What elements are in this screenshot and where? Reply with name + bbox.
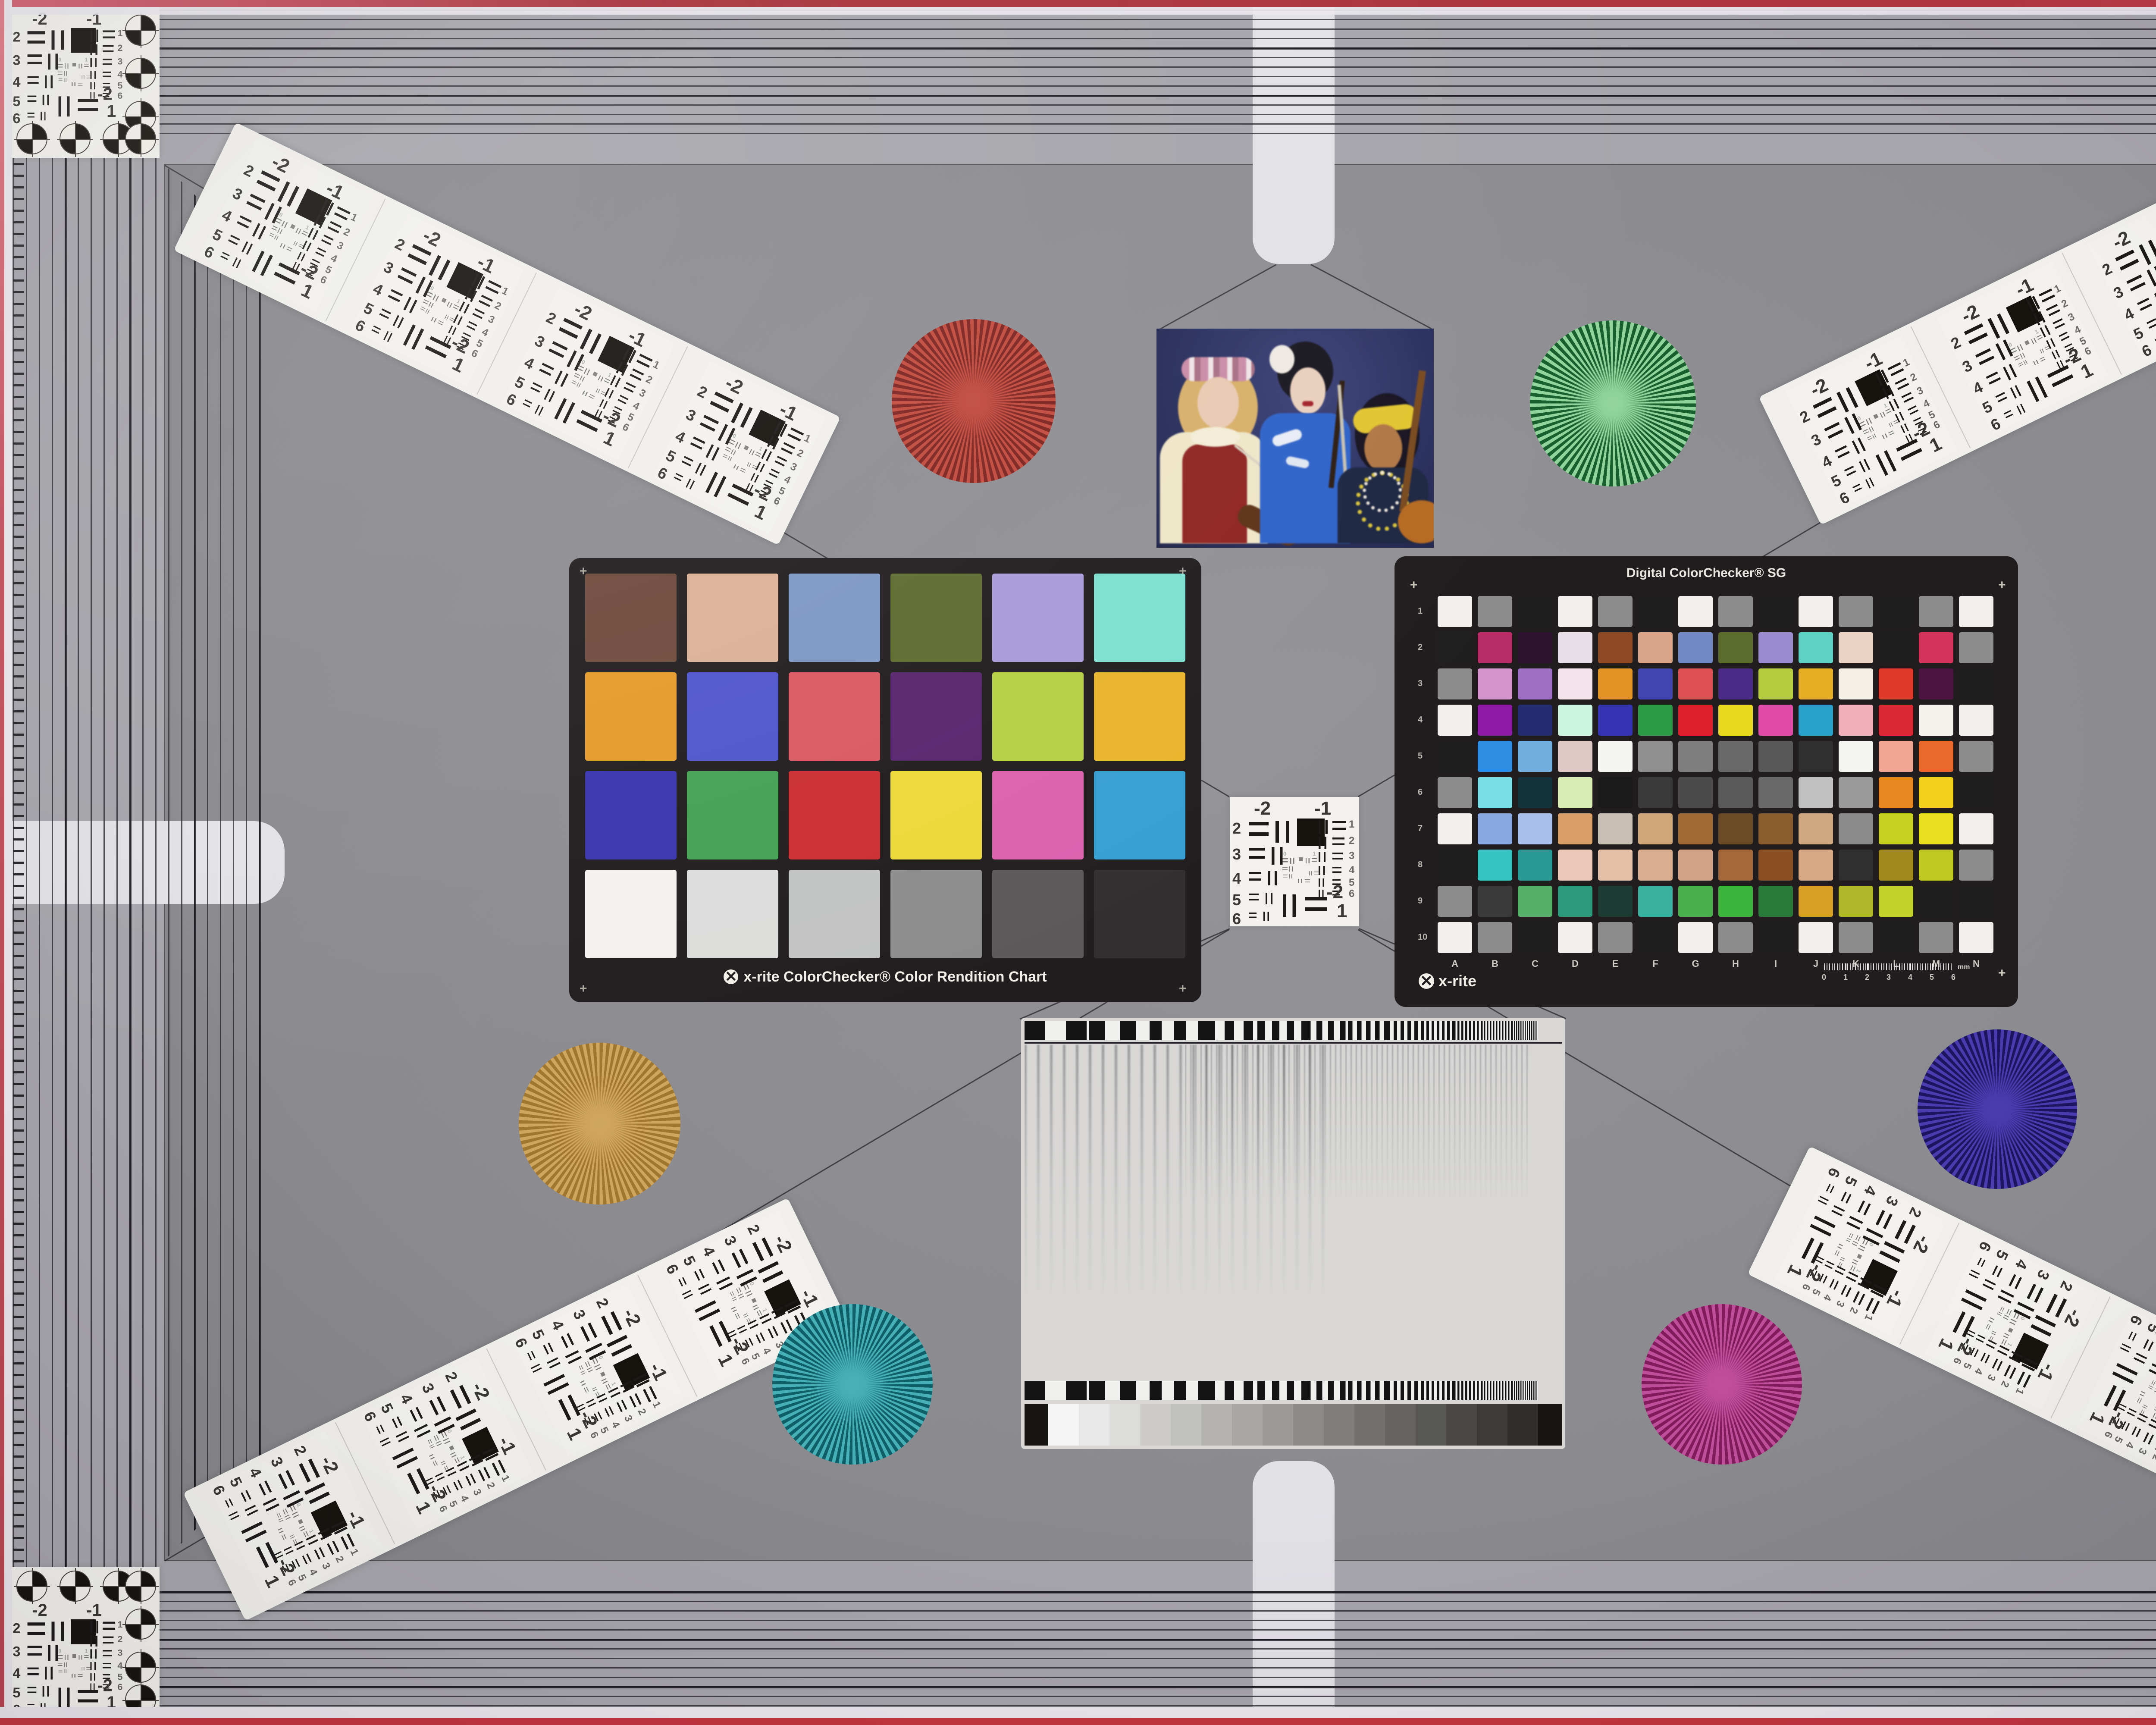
sg-patch-F4: [1638, 705, 1673, 736]
usaf-hbar-group: [729, 1249, 749, 1269]
usaf-hbar-group: [1824, 422, 1844, 441]
usaf-right-hbars: [780, 442, 795, 456]
sg-patch-M2: [1919, 632, 1953, 663]
usaf-bottom-minus2: -2: [1326, 881, 1343, 903]
sg-col-label: G: [1678, 958, 1713, 969]
usaf-right-number: 4: [608, 1420, 622, 1430]
usaf-cluster-square: [592, 371, 598, 376]
c: [1882, 433, 1888, 439]
usaf-label-top-left: -2: [268, 151, 293, 178]
usaf-left-number: 2: [13, 29, 20, 45]
usaf-cluster-square: [752, 1298, 757, 1303]
c: [281, 1534, 286, 1540]
left-woman-collar: [1190, 427, 1240, 447]
sg-patch-N1: [1959, 596, 1993, 627]
sg-row-label: 4: [1418, 715, 1423, 725]
usaf-hbar-group: [224, 1498, 233, 1508]
usaf-right-number: 3: [1984, 1372, 1998, 1383]
usaf-hbar-group: [699, 415, 719, 434]
usaf-vbar-group: [695, 462, 708, 477]
usaf-cluster-label: 0: [429, 285, 435, 292]
c: [1283, 875, 1288, 878]
sg-patch-N6: [1959, 777, 1993, 808]
usaf-right-hbars: [615, 1400, 627, 1413]
sg-patch-C7: [1518, 813, 1552, 844]
usaf-right-number: 6: [772, 495, 782, 508]
usaf-left-number: 3: [13, 52, 20, 69]
sg-patch-K7: [1839, 813, 1873, 844]
c: [445, 315, 450, 320]
usaf-right-hbars: [2153, 1438, 2156, 1453]
c: [2136, 1397, 2142, 1404]
c: [298, 244, 303, 249]
chirp-bars: [1348, 1381, 1387, 1400]
c: [1852, 1241, 1858, 1247]
sg-patch-B3: [1478, 668, 1512, 699]
usaf-hbar-group: [2126, 274, 2147, 294]
cc-plus-mark: +: [1179, 564, 1187, 579]
usaf-left-number: 2: [290, 1443, 310, 1458]
usaf-bottom-vbars: [554, 398, 578, 425]
c: [295, 228, 302, 235]
sg-patch-K6: [1839, 777, 1873, 808]
c: [1869, 426, 1875, 433]
usaf-right-hbars: [779, 1320, 793, 1335]
usaf-bottom-one: 1: [107, 102, 116, 121]
usaf-left-number: 6: [1232, 910, 1241, 928]
c: [1282, 858, 1288, 863]
quadrant-circle-mark: [125, 15, 156, 46]
usaf-vbar-group: [531, 1364, 542, 1374]
sg-patch-I5: [1758, 741, 1793, 772]
sg-patch-G2: [1678, 632, 1713, 663]
c: [276, 1513, 281, 1518]
usaf-left-number: 4: [13, 74, 20, 90]
usaf-cluster-label: 0: [1856, 415, 1862, 422]
sg-patch-M1: [1919, 596, 1953, 627]
sg-patch-B2: [1478, 632, 1512, 663]
usaf-right-number: 1: [348, 211, 359, 224]
usaf-right-number: 4: [2072, 323, 2083, 337]
usaf-right-number: 3: [117, 56, 122, 67]
sg-patch-F5: [1638, 741, 1673, 772]
usaf-right-number: 3: [637, 387, 648, 400]
sg-patch-H3: [1718, 668, 1753, 699]
usaf-bottom-vbars: [1808, 1216, 1836, 1239]
left-woman-face: [1197, 377, 1239, 429]
usaf-right-number: 4: [1972, 1366, 1985, 1376]
cc-patch-r4c4: [890, 870, 982, 958]
sg-ruler-number: 5: [1930, 973, 1934, 982]
sg-patch-J4: [1799, 705, 1833, 736]
usaf-cluster-label: 0: [295, 1502, 302, 1508]
usaf-left-number: 2: [1948, 333, 1964, 353]
usaf-hbar-group: [408, 1407, 423, 1423]
c: [449, 317, 454, 323]
c: [292, 1539, 298, 1544]
c: [431, 317, 437, 323]
portrait-photo: [1156, 329, 1434, 548]
sg-mm-ruler: 0123456mm: [1824, 963, 1988, 989]
cc-patch-r2c2: [687, 672, 778, 761]
c: [274, 235, 279, 240]
c: [1834, 1250, 1839, 1256]
sg-patch-I4: [1758, 705, 1793, 736]
chirp-resolution-card: [1021, 1018, 1565, 1449]
usaf-right-number: 1: [498, 1473, 512, 1483]
usaf-bottom-minus2: -2: [97, 1676, 113, 1695]
c: [2139, 1391, 2145, 1397]
usaf-vbar-group: [229, 1511, 240, 1521]
sg-patch-K5: [1839, 741, 1873, 772]
trumpet-fade-fine: [1185, 1044, 1530, 1286]
usaf-right-number: 4: [1921, 397, 1932, 411]
c: [755, 452, 761, 458]
sg-patch-K8: [1839, 850, 1873, 881]
usaf-left-number: 3: [418, 1380, 438, 1396]
usaf-resolution-card: -2-12345612345601-21: [10, 1600, 127, 1716]
c: [2018, 362, 2023, 367]
usaf-left-number: 5: [2143, 1320, 2156, 1336]
usaf-hbar-group: [28, 54, 42, 67]
usaf-left-number: 5: [528, 1327, 548, 1342]
usaf-hbar-group: [245, 194, 265, 213]
usaf-bottom-one: 1: [2085, 1409, 2109, 1428]
usaf-vbar-group: [380, 1437, 392, 1448]
usaf-right-number: 5: [117, 1672, 122, 1683]
c: [64, 78, 67, 82]
sg-patch-A1: [1438, 596, 1472, 627]
usaf-resolution-card: -2-12345612345601-21: [209, 1430, 382, 1603]
sg-patch-E6: [1598, 777, 1633, 808]
usaf-vbar-group: [1836, 386, 1861, 412]
usaf-vbar-group: [758, 1261, 785, 1286]
c: [735, 442, 742, 450]
usaf-left-number: 4: [1819, 452, 1834, 472]
sg-patch-N9: [1959, 886, 1993, 917]
usaf-vbar-group: [544, 389, 557, 403]
usaf-resolution-card: -2-12345612345601-21: [10, 9, 127, 125]
sg-ruler-number: 1: [1843, 973, 1848, 982]
sg-patch-E10: [1598, 922, 1633, 953]
usaf-left-number: 5: [1980, 397, 1995, 417]
usaf-right-number: 5: [117, 81, 122, 91]
usaf-right-number: 4: [329, 252, 339, 266]
usaf-cluster-label: 1: [459, 1455, 467, 1460]
cc-patch-r4c1: [585, 870, 677, 958]
usaf-left-number: 2: [694, 382, 710, 402]
usaf-right-number: 3: [788, 461, 799, 474]
cc-plus-mark: +: [580, 564, 587, 579]
usaf-vbar-group: [455, 1408, 482, 1433]
sg-ruler-number: 6: [1951, 973, 1955, 982]
usaf-right-hbars: [1332, 853, 1343, 861]
usaf-bottom-vbars: [59, 96, 72, 116]
chirp-bars: [1512, 1381, 1538, 1400]
usaf-bottom-one: 1: [298, 279, 317, 304]
usaf-bottom-vbars: [2111, 1363, 2138, 1387]
usaf-label-top-left: -2: [467, 1379, 494, 1404]
usaf-left-number: 6: [655, 464, 670, 484]
usaf-left-number: 6: [352, 316, 368, 336]
usaf-left-number: 2: [2056, 1278, 2077, 1294]
sg-patch-B9: [1478, 886, 1512, 917]
sg-patch-M9: [1919, 886, 1953, 917]
c: [429, 1454, 435, 1461]
usaf-left-number: 6: [201, 242, 217, 263]
c: [2009, 1319, 2017, 1326]
magenta-siemens-star: [1642, 1304, 1802, 1465]
teal-siemens-star-center-fade: [785, 1317, 920, 1452]
usaf-right-number: 2: [2149, 1452, 2156, 1463]
usaf-cluster-label: 0: [59, 57, 62, 63]
usaf-right-number: 2: [117, 1634, 122, 1645]
usaf-bottom-vbars: [59, 1687, 72, 1708]
sg-patch-D9: [1558, 886, 1592, 917]
sg-patch-L3: [1879, 668, 1913, 699]
usaf-cluster-label: 1: [304, 224, 310, 231]
usaf-right-number: 1: [1349, 819, 1354, 831]
sg-patch-F3: [1638, 668, 1673, 699]
chirp-bars: [1257, 1381, 1305, 1400]
c: [740, 467, 746, 473]
usaf-bottom-vbars: [1876, 449, 1899, 476]
usaf-right-hbars: [768, 468, 780, 479]
usaf-right-vbars: [90, 44, 99, 55]
sg-patch-H1: [1718, 596, 1753, 627]
usaf-hbar-group: [681, 456, 693, 468]
usaf-cluster-label: 1: [456, 298, 461, 305]
usaf-left-number: 4: [2121, 304, 2137, 324]
c: [1305, 879, 1310, 883]
chirp-bars: [1421, 1021, 1454, 1040]
usaf-right-hbars: [629, 368, 644, 383]
sg-patch-I2: [1758, 632, 1793, 663]
c: [576, 365, 584, 372]
cc-patch-r1c4: [890, 574, 982, 662]
usaf-cluster-square: [449, 1446, 454, 1451]
sg-patch-B1: [1478, 596, 1512, 627]
usaf-hbar-group: [1825, 1183, 1834, 1193]
usaf-hbar-group: [1835, 445, 1851, 460]
usaf-bottom-one: 1: [713, 1351, 737, 1370]
usaf-right-hbars: [2053, 318, 2066, 331]
sg-patch-J2: [1799, 632, 1833, 663]
usaf-right-number: 1: [117, 28, 122, 39]
c: [269, 233, 274, 238]
usaf-left-number: 5: [210, 225, 225, 245]
usaf-right-hbars: [627, 1393, 642, 1408]
c: [747, 462, 752, 467]
top-edge-white-line: [0, 7, 2156, 15]
c: [1991, 1331, 1996, 1336]
usaf-hbar-group: [236, 215, 252, 230]
usaf-right-number: 4: [480, 326, 490, 339]
c: [84, 1655, 89, 1659]
usaf-hbar-group: [1873, 1209, 1893, 1229]
chirp-bars: [1089, 1021, 1150, 1040]
usaf-left-number: 6: [209, 1483, 229, 1498]
usaf-vbar-group: [1830, 1205, 1845, 1218]
usaf-right-hbars: [1895, 378, 1910, 392]
sg-patch-B7: [1478, 813, 1512, 844]
chirp-bars: [1305, 1381, 1348, 1400]
sg-patch-B10: [1478, 922, 1512, 953]
usaf-resolution-card: -2-12345612345601-21: [1936, 261, 2109, 434]
usaf-bottom-hbars: [1305, 897, 1327, 914]
cc-patch-r2c4: [890, 672, 982, 761]
usaf-cluster-label: 0: [2019, 1316, 2026, 1321]
c: [64, 1669, 67, 1673]
c: [429, 1444, 435, 1449]
usaf-hbar-group: [379, 308, 391, 320]
usaf-cluster-label: 1: [1313, 850, 1316, 857]
usaf-right-number: 6: [620, 421, 631, 434]
usaf-bottom-one: 1: [1783, 1261, 1807, 1280]
sg-plus-mark: +: [1410, 578, 1418, 593]
c: [1880, 411, 1887, 418]
usaf-right-number: 2: [332, 1554, 346, 1565]
usaf-left-number: 3: [721, 1233, 741, 1248]
c: [1988, 1317, 1994, 1324]
chirp-bars: [1454, 1021, 1484, 1040]
usaf-right-number: 3: [319, 1561, 332, 1571]
c: [58, 72, 63, 75]
usaf-right-hbars: [766, 1326, 779, 1339]
usaf-right-number: 3: [621, 1413, 635, 1424]
left-edge-white-line: [4, 0, 12, 1725]
c: [2037, 335, 2043, 341]
usaf-left-number: 4: [548, 1317, 568, 1333]
sg-patch-F1: [1638, 596, 1673, 627]
xrite-logo-icon: ✕: [724, 969, 738, 984]
usaf-right-hbars: [1332, 867, 1341, 875]
quadrant-circle-mark: [125, 123, 156, 154]
registration-diagonal-line: [1310, 264, 1432, 329]
usaf-hbar-group: [427, 1396, 446, 1417]
sg-row-label: 2: [1418, 643, 1423, 652]
usaf-center-cluster: 01: [56, 1650, 95, 1682]
usaf-hbar-group: [387, 289, 403, 304]
c: [425, 309, 430, 314]
usaf-cluster-label: 0: [59, 1648, 62, 1654]
c: [432, 1460, 438, 1467]
usaf-cluster-square: [442, 298, 447, 303]
sg-ruler-number: 4: [1908, 973, 1912, 982]
usaf-center-cluster: 01: [1281, 852, 1324, 888]
usaf-cluster-square: [290, 224, 295, 229]
usaf-bottom-vbars: [1283, 894, 1299, 917]
c: [78, 64, 83, 69]
c: [78, 1674, 83, 1678]
c: [436, 1441, 442, 1447]
usaf-vbar-group: [1878, 1241, 1905, 1266]
c: [72, 1674, 76, 1678]
c: [1858, 421, 1866, 428]
usaf-right-hbars: [333, 206, 351, 222]
usaf-hbar-group: [689, 436, 705, 452]
usaf-hbar-group: [28, 76, 39, 86]
gray-step-wedge: [1048, 1404, 1538, 1446]
sg-patch-M4: [1919, 705, 1953, 736]
usaf-hbar-group: [2142, 1339, 2154, 1351]
sg-patch-A5: [1438, 741, 1472, 772]
c: [2009, 347, 2018, 354]
cc-patch-r1c5: [992, 574, 1084, 662]
usaf-bottom-one: 1: [411, 1498, 435, 1517]
usaf-left-number: 2: [1905, 1204, 1925, 1220]
usaf-right-number: 2: [644, 373, 654, 387]
usaf-left-number: 2: [592, 1295, 613, 1311]
sg-patch-D2: [1558, 632, 1592, 663]
sg-patch-G9: [1678, 886, 1713, 917]
usaf-right-hbars: [1851, 1290, 1865, 1305]
sg-patch-D8: [1558, 850, 1592, 881]
usaf-left-number: 4: [396, 1391, 417, 1406]
usaf-right-hbars: [103, 1637, 113, 1646]
usaf-right-vbars: [90, 1621, 100, 1634]
c: [2031, 337, 2037, 344]
usaf-right-number: 3: [1349, 850, 1354, 862]
sg-patch-C1: [1518, 596, 1552, 627]
usaf-label-top-left: -2: [1958, 301, 1983, 327]
usaf-right-number: 2: [795, 447, 805, 461]
sg-patch-M8: [1919, 850, 1953, 881]
usaf-right-hbars: [603, 1406, 614, 1418]
sg-ruler-number: 0: [1822, 973, 1826, 982]
c: [745, 1290, 753, 1298]
usaf-right-hbars: [103, 45, 113, 54]
sg-title: Digital ColorChecker® SG: [1395, 566, 2018, 580]
usaf-bottom-one: 1: [1934, 1335, 1958, 1354]
sg-col-label: E: [1598, 958, 1633, 969]
cc-patch-r3c1: [585, 771, 677, 859]
usaf-vbar-group: [1275, 821, 1293, 843]
c: [65, 63, 69, 69]
c: [2154, 1388, 2156, 1394]
usaf-vbar-group: [682, 1290, 694, 1300]
sg-patch-J1: [1799, 596, 1833, 627]
usaf-left-number: 5: [13, 93, 20, 110]
sg-patch-D6: [1558, 777, 1592, 808]
sg-patch-J7: [1799, 813, 1833, 844]
c: [1888, 430, 1895, 436]
sg-patch-D10: [1558, 922, 1592, 953]
quadrant-circle-mark: [60, 1571, 91, 1602]
usaf-bottom-one: 1: [260, 1572, 284, 1591]
usaf-hbar-group: [1249, 822, 1269, 839]
usaf-left-number: 3: [2033, 1267, 2053, 1283]
c: [587, 1367, 593, 1373]
c: [1840, 1257, 1845, 1262]
sg-patch-C10: [1518, 922, 1552, 953]
sg-patch-D4: [1558, 705, 1592, 736]
usaf-left-number: 3: [683, 405, 699, 426]
usaf-left-number: 3: [569, 1307, 589, 1322]
c: [732, 1297, 737, 1302]
c: [594, 1364, 602, 1371]
usaf-resolution-card: -2-12345612345601-21: [511, 1283, 684, 1456]
usaf-bottom-vbars: [2027, 375, 2050, 402]
sg-patch-I10: [1758, 922, 1793, 953]
usaf-label-top-left: -2: [32, 1601, 47, 1620]
usaf-right-hbars: [774, 456, 787, 468]
c: [278, 1518, 283, 1523]
usaf-right-number: 6: [117, 91, 122, 101]
usaf-right-hbars: [490, 1460, 506, 1477]
sg-patch-K4: [1839, 705, 1873, 736]
c: [437, 320, 444, 326]
